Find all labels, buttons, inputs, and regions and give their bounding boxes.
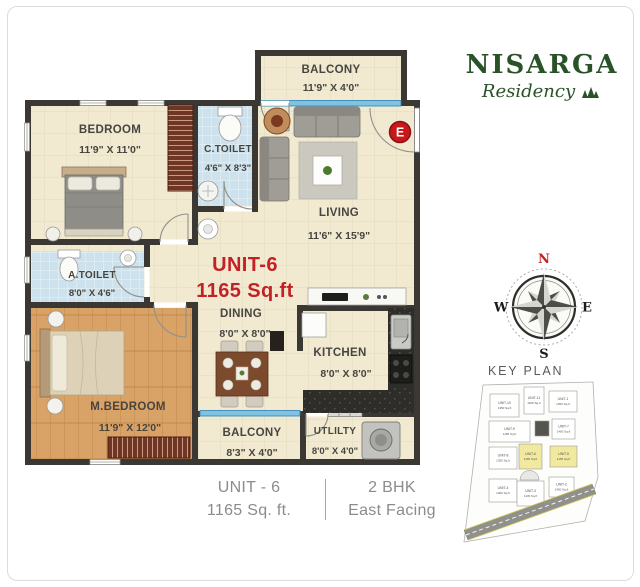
svg-text:8'0" X 8'0": 8'0" X 8'0" xyxy=(219,328,270,340)
toilet-wc-icon xyxy=(218,107,242,141)
key-plan-map: UNIT-101350 Sq.ft UNIT-111165 Sq.ft UNIT… xyxy=(462,381,622,549)
utility-label: UTLILTY xyxy=(314,426,356,437)
stove-icon xyxy=(390,355,412,383)
master-wardrobe-icon xyxy=(108,437,190,458)
caption-facing: East Facing xyxy=(336,500,448,523)
svg-text:1165 Sq.ft: 1165 Sq.ft xyxy=(557,457,571,461)
compass-south-label: S xyxy=(539,347,548,362)
svg-text:1350 Sq.ft: 1350 Sq.ft xyxy=(498,406,512,410)
svg-text:UNIT-10: UNIT-10 xyxy=(498,401,511,405)
wash-basin-icon xyxy=(198,219,218,239)
compass-west-label: W xyxy=(494,301,509,316)
svg-text:1400 Sq.ft: 1400 Sq.ft xyxy=(496,491,510,495)
svg-text:UNIT-4: UNIT-4 xyxy=(498,486,509,490)
compass-east-label: E xyxy=(582,301,592,316)
svg-text:11'6" X 15'9": 11'6" X 15'9" xyxy=(308,230,370,242)
svg-text:UNIT-1: UNIT-1 xyxy=(558,397,569,401)
floor-plan: E BALCONY 11'9" X 4'0" BEDROOM 11'9" X 1… xyxy=(22,45,422,470)
svg-text:UNIT-9: UNIT-9 xyxy=(504,427,515,431)
svg-text:1165 Sq.ft: 1165 Sq.ft xyxy=(503,432,517,436)
svg-text:8'0" X 8'0": 8'0" X 8'0" xyxy=(320,368,371,380)
caption: UNIT - 6 1165 Sq. ft. 2 BHK East Facing xyxy=(183,477,448,522)
bedroom-label: BEDROOM xyxy=(79,124,141,136)
svg-text:UNIT-2: UNIT-2 xyxy=(556,483,567,487)
svg-text:11'9" X 11'0": 11'9" X 11'0" xyxy=(79,144,141,156)
brand-tagline: Residency xyxy=(482,81,575,102)
key-plan-title: KEY PLAN xyxy=(488,364,628,378)
unit-area: 1165 Sq.ft xyxy=(196,280,293,302)
svg-text:1165 Sq.ft: 1165 Sq.ft xyxy=(524,457,538,461)
kitchen-label: KITCHEN xyxy=(313,347,366,359)
svg-text:8'0" X 4'0": 8'0" X 4'0" xyxy=(312,446,358,457)
brand-name: NISARGA xyxy=(452,50,632,80)
coffee-table-icon xyxy=(299,142,357,199)
key-plan: KEY PLAN xyxy=(462,364,628,554)
living-label: LIVING xyxy=(319,207,359,219)
compass-star xyxy=(510,273,578,341)
svg-text:4'6" X 8'3": 4'6" X 8'3" xyxy=(205,163,251,174)
svg-text:UNIT-5: UNIT-5 xyxy=(558,452,569,456)
svg-text:1165 Sq.ft: 1165 Sq.ft xyxy=(527,401,541,405)
balcony-top-label: BALCONY xyxy=(302,64,361,76)
svg-text:UNIT-8: UNIT-8 xyxy=(498,454,509,458)
svg-text:UNIT-3: UNIT-3 xyxy=(525,489,536,493)
crockery-unit-icon xyxy=(270,331,284,351)
unit-number: UNIT-6 xyxy=(212,254,278,276)
svg-text:1400 Sq.ft: 1400 Sq.ft xyxy=(555,488,569,492)
a-toilet-label: A.TOILET xyxy=(68,270,116,281)
kitchen-counter-icon xyxy=(308,288,406,305)
svg-text:11'9" X 4'0": 11'9" X 4'0" xyxy=(303,82,359,94)
round-chair-icon xyxy=(264,108,290,134)
fridge-icon xyxy=(302,313,326,337)
compass-rose: N S E W xyxy=(494,250,594,362)
svg-text:1350 Sq.ft: 1350 Sq.ft xyxy=(556,402,570,406)
wardrobe-icon xyxy=(168,105,193,191)
kitchen-sink-icon xyxy=(391,315,411,349)
brand-logo: NISARGA Residency xyxy=(452,50,632,102)
svg-text:E: E xyxy=(396,126,404,140)
svg-text:8'3" X 4'0": 8'3" X 4'0" xyxy=(226,447,277,459)
caption-type: 2 BHK xyxy=(336,477,448,500)
svg-text:UNIT-11: UNIT-11 xyxy=(528,396,540,400)
m-bedroom-label: M.BEDROOM xyxy=(90,401,166,413)
svg-text:1145 Sq.ft: 1145 Sq.ft xyxy=(524,494,538,498)
washing-machine-icon xyxy=(362,422,400,459)
kitchen-counter-granite-bottom xyxy=(303,390,414,413)
svg-text:11'9" X 12'0": 11'9" X 12'0" xyxy=(99,422,161,434)
c-toilet-label: C.TOILET xyxy=(204,144,252,155)
caption-area: 1165 Sq. ft. xyxy=(183,500,315,523)
svg-text:UNIT-6: UNIT-6 xyxy=(525,452,536,456)
shower-icon xyxy=(198,181,218,201)
svg-text:8'0" X 4'6": 8'0" X 4'6" xyxy=(69,288,115,299)
trees-icon xyxy=(578,85,602,99)
east-entry-marker: E xyxy=(390,122,411,143)
brochure-page: E BALCONY 11'9" X 4'0" BEDROOM 11'9" X 1… xyxy=(0,0,640,587)
lift-block xyxy=(535,421,549,436)
balcony-bottom-label: BALCONY xyxy=(223,427,282,439)
svg-text:UNIT-7: UNIT-7 xyxy=(558,425,569,429)
dining-label: DINING xyxy=(220,308,262,320)
caption-unit: UNIT - 6 xyxy=(183,477,315,500)
caption-divider xyxy=(325,479,326,520)
svg-text:1400 Sq.ft: 1400 Sq.ft xyxy=(557,430,571,434)
compass-north-label: N xyxy=(538,252,550,267)
svg-text:1350 Sq.ft: 1350 Sq.ft xyxy=(496,459,510,463)
